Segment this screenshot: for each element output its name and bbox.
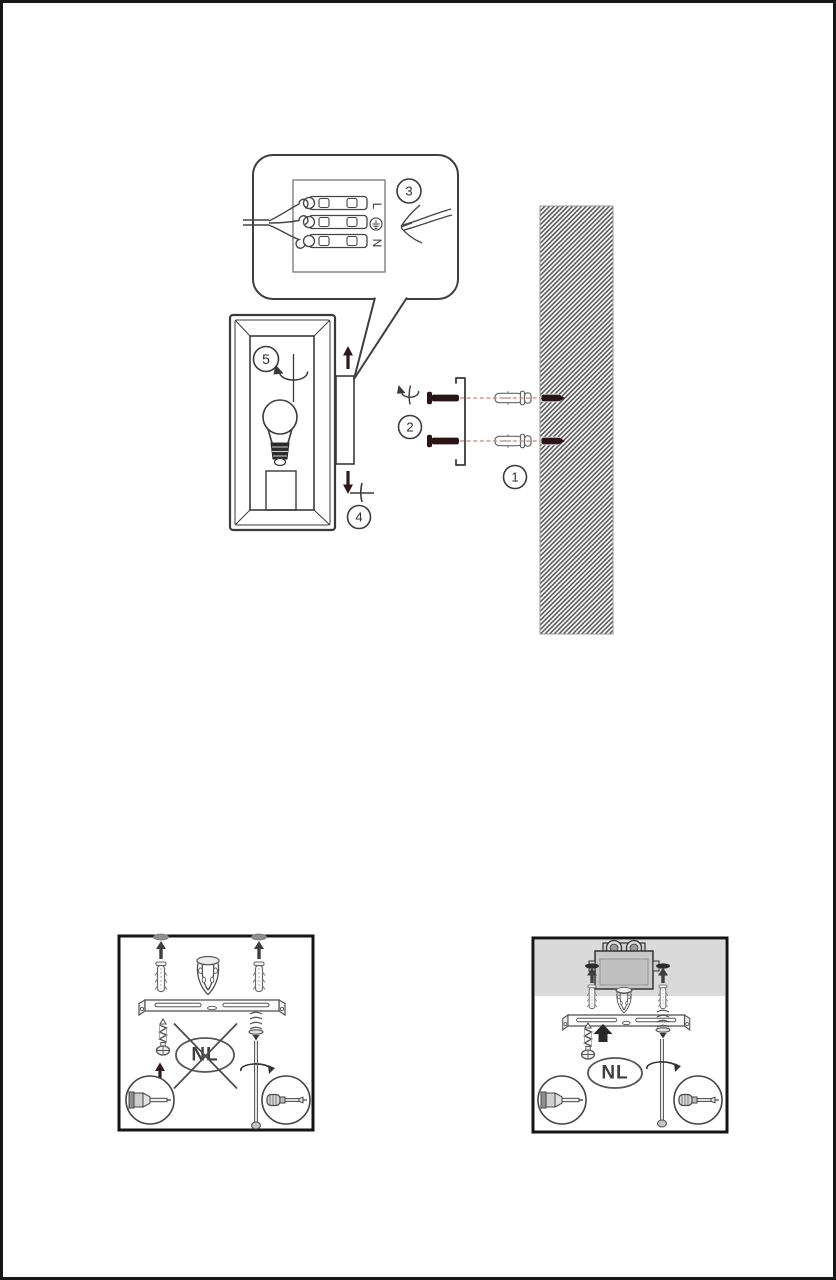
step-5-number: 5	[262, 351, 270, 367]
wall-cross-section	[540, 206, 613, 634]
step-2-number: 2	[406, 420, 413, 435]
step-1-number: 1	[511, 470, 518, 485]
screwdriver-detail-circle	[262, 1076, 310, 1124]
lamp-mounting-plate	[336, 376, 354, 464]
step-5-badge: 5	[254, 347, 279, 372]
mounting-screw	[427, 392, 459, 405]
step-1-badge: 1	[504, 466, 527, 489]
screwdriver-detail-circle	[674, 1076, 722, 1124]
rotate-screw-icon	[397, 385, 419, 405]
drill-tool-detail-circle	[538, 1076, 586, 1124]
alignment-guide-dashed-line	[460, 398, 548, 441]
country-label: NL	[601, 1063, 628, 1084]
mounting-bracket-edge-view	[456, 378, 465, 465]
mounting-screw	[427, 435, 459, 448]
step-4-number: 4	[355, 510, 362, 525]
step-4-badge: 4	[348, 506, 371, 529]
insert-up-arrow-icon	[343, 346, 353, 369]
wiring-callout-balloon: L N 3	[243, 155, 458, 379]
left-instruction-panel: NL	[119, 934, 313, 1130]
manual-page: 5 4	[0, 0, 836, 1280]
country-badge-nl: NL	[588, 1058, 642, 1088]
main-mounting-diagram: 5 4	[3, 3, 836, 703]
terminal-label-neutral: N	[370, 239, 384, 248]
phillips-screwdriver-icon	[350, 483, 374, 502]
step-3-badge: 3	[397, 179, 421, 203]
hole-cap	[154, 934, 169, 940]
step-2-badge: 2	[399, 416, 422, 439]
step-3-number: 3	[405, 184, 412, 199]
right-instruction-panel: NL	[533, 938, 727, 1132]
insert-down-arrow-icon	[343, 471, 353, 494]
light-bulb	[263, 400, 297, 466]
country-specific-mounting-panels: NL	[3, 903, 836, 1163]
drill-tool-detail-circle	[126, 1076, 174, 1124]
terminal-label-live: L	[370, 203, 384, 210]
hole-cap	[252, 934, 267, 940]
lamp-bottom-panel	[266, 471, 296, 510]
